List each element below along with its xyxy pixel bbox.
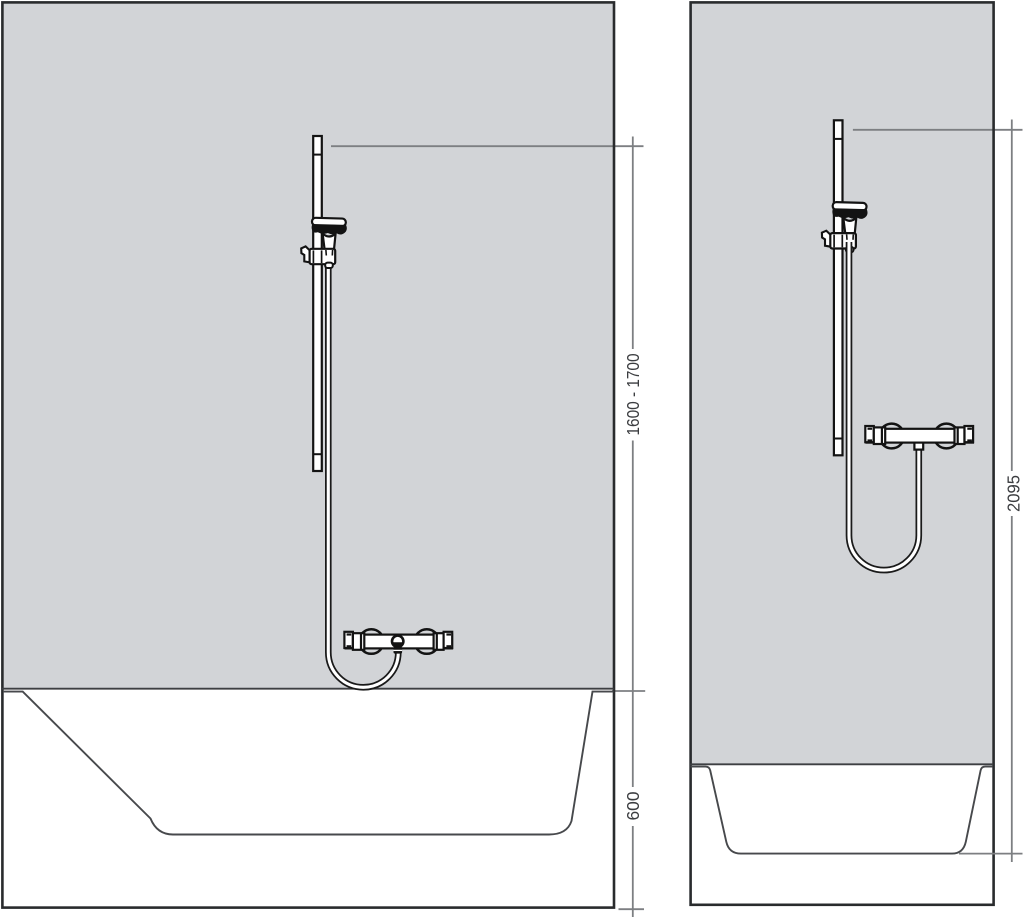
- svg-text:600: 600: [623, 791, 643, 820]
- svg-text:1600 - 1700: 1600 - 1700: [623, 353, 643, 435]
- svg-text:2095: 2095: [1004, 475, 1024, 512]
